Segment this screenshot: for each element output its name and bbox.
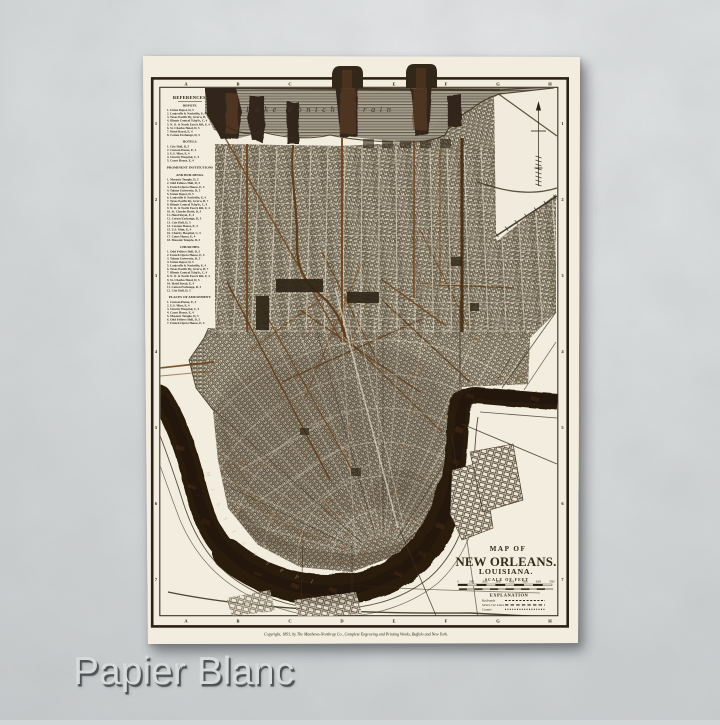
svg-text:CHURCHES.: CHURCHES. [180,245,200,249]
svg-text:5000: 5000 [522,581,528,584]
svg-text:C: C [288,82,291,87]
svg-text:18. Masonic Temple, D, 5: 18. Masonic Temple, D, 5 [167,238,201,242]
svg-text:Papier Blanc: Papier Blanc [73,650,294,693]
svg-text:H: H [548,619,552,624]
svg-text:REFERENCES.: REFERENCES. [173,95,207,100]
svg-text:Street Car Lines: Street Car Lines [482,603,505,607]
svg-text:8. Cotton Exchange, D, 5: 8. Cotton Exchange, D, 5 [167,133,200,137]
svg-text:3000: 3000 [496,581,502,584]
svg-text:G: G [496,619,500,624]
svg-text:Canals: Canals [482,607,492,611]
svg-text:PLACES OF AMUSEMENT.: PLACES OF AMUSEMENT. [169,295,212,299]
svg-text:7. French Opera House, E, 4: 7. French Opera House, E, 4 [167,321,205,325]
svg-text:5. Court House, E, 4: 5. Court House, E, 4 [167,159,194,163]
svg-text:E: E [392,619,395,624]
svg-text:AND BUILDINGS.: AND BUILDINGS. [176,173,204,177]
svg-text:2000: 2000 [482,581,488,584]
svg-text:Lake Pontchartrain: Lake Pontchartrain [245,104,396,114]
svg-text:Railroads: Railroads [481,599,496,603]
svg-text:F: F [445,82,448,87]
svg-text:G: G [496,82,500,87]
svg-text:7000: 7000 [549,581,555,584]
svg-text:1000: 1000 [469,581,475,584]
svg-text:E: E [392,82,395,87]
svg-text:4000: 4000 [509,581,515,584]
svg-text:6000: 6000 [536,581,542,584]
svg-text:B: B [236,82,239,87]
svg-text:LOUISIANA.: LOUISIANA. [479,567,533,576]
svg-text:B: B [236,619,239,624]
svg-text:PROMINENT INSTITUTIONS: PROMINENT INSTITUTIONS [167,165,213,169]
svg-text:12. City Hall, D, 5: 12. City Hall, D, 5 [167,288,191,292]
svg-text:DEPOTS.: DEPOTS. [183,104,198,108]
svg-text:HOTELS.: HOTELS. [183,140,198,144]
svg-text:MAP OF: MAP OF [490,545,527,553]
svg-text:H: H [548,82,552,87]
svg-text:EXPLANATION: EXPLANATION [490,593,529,598]
svg-text:C: C [288,619,291,624]
svg-text:F: F [445,619,448,624]
